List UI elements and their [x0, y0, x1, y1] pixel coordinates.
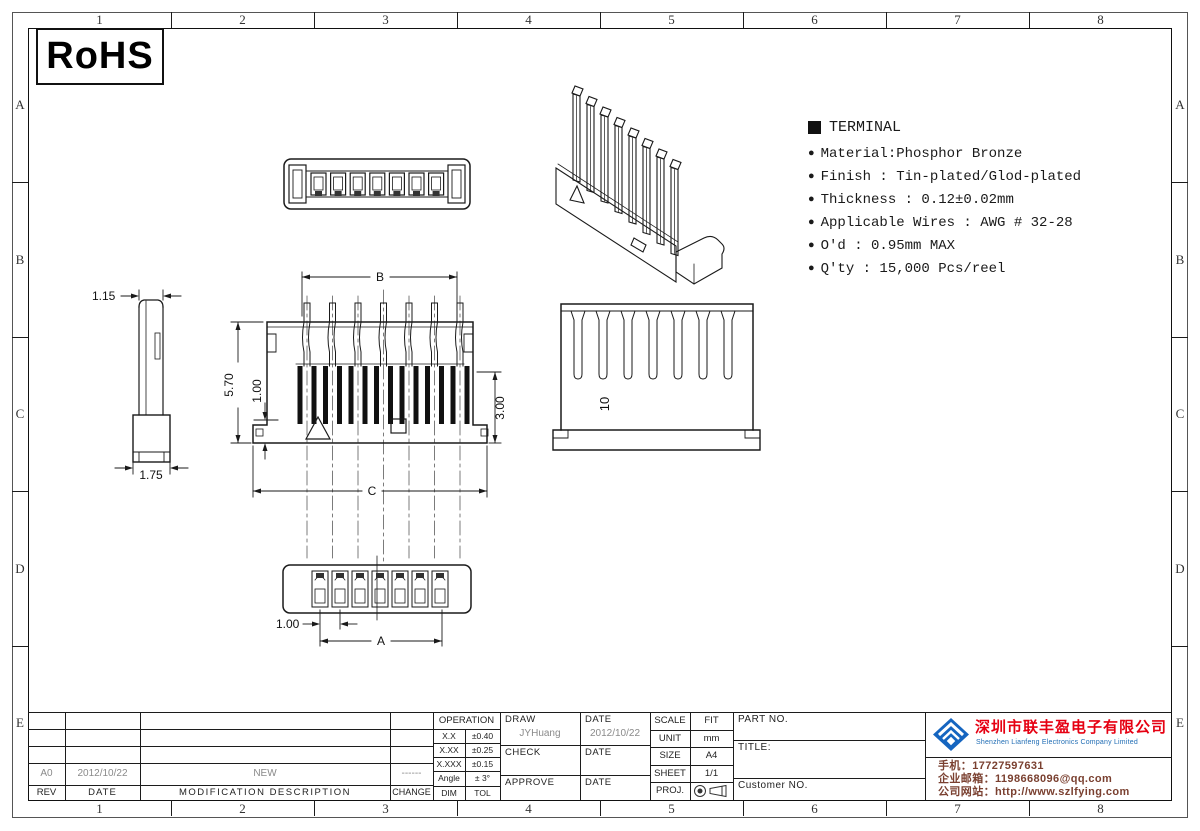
tol-val: ±0.40: [465, 729, 500, 743]
drawing-canvas: 1.15 1.75 B 5.70 1.00 3.00 C 1.00 A 10: [0, 0, 1200, 831]
iso-body: [556, 164, 678, 282]
rev-date: 2012/10/22: [65, 763, 140, 785]
tol-dim: X.XX: [433, 743, 465, 757]
scale-label: SCALE: [650, 712, 690, 730]
draw-date-value: 2012/10/22: [580, 726, 650, 742]
title-label: TITLE:: [738, 743, 771, 753]
dim-label-5-70: 5.70: [222, 373, 236, 397]
approve-label: APPROVE: [505, 778, 554, 788]
company-name-en: Shenzhen Lianfeng Electronics Company Li…: [976, 739, 1138, 746]
part-no-label: PART NO.: [738, 715, 788, 725]
tol-val: ±0.25: [465, 743, 500, 757]
rev-desc-header: MODIFICATION DESCRIPTION: [140, 785, 390, 800]
sheet-value: 1/1: [690, 765, 733, 782]
iso-foot: [676, 236, 724, 284]
rev-change-header: CHANGE: [390, 785, 433, 800]
view-rear: [553, 304, 760, 450]
view-front: [231, 272, 501, 562]
size-value: A4: [690, 747, 733, 765]
iso-blades: [572, 86, 681, 256]
proj-label: PROJ.: [650, 782, 690, 800]
unit-label: UNIT: [650, 730, 690, 747]
size-label: SIZE: [650, 747, 690, 765]
tol-dim: X.XXX: [433, 757, 465, 771]
bottom-view-contacts: [312, 571, 448, 607]
dim-label-1-00-front: 1.00: [250, 379, 264, 403]
check-date-label: DATE: [585, 748, 612, 758]
sheet-label: SHEET: [650, 765, 690, 782]
dim-1-00-front: [254, 403, 278, 459]
tol-dim: X.X: [433, 729, 465, 743]
front-centerlines: [307, 290, 460, 562]
rear-slots: [571, 311, 735, 379]
tol-val: TOL: [465, 786, 500, 800]
first-angle-projection-icon: [690, 782, 733, 800]
dim-label-1-15: 1.15: [92, 289, 116, 303]
company-name-cn: 深圳市联丰盈电子有限公司: [975, 720, 1167, 735]
tol-dim: DIM: [433, 786, 465, 800]
draw-date-label: DATE: [585, 715, 612, 725]
rev-description: NEW: [140, 763, 390, 785]
dim-label-1-00-pitch: 1.00: [276, 617, 300, 631]
rev-header: REV: [28, 785, 65, 800]
check-label: CHECK: [505, 748, 541, 758]
view-isometric: [556, 86, 724, 284]
company-phone: 手机：17727597631: [938, 761, 1044, 772]
drawing-sheet: 1 2 3 4 5 6 7 8 1 2 3 4 5 6 7 8 A B C D …: [0, 0, 1200, 831]
view-top: [284, 159, 470, 209]
dim-label-b: B: [376, 270, 384, 284]
view-bottom: [283, 556, 471, 646]
unit-value: mm: [690, 730, 733, 747]
approve-date-label: DATE: [585, 778, 612, 788]
tolerance-header: OPERATION: [433, 712, 500, 729]
tol-dim: Angle: [433, 771, 465, 786]
draw-label: DRAW: [505, 715, 536, 725]
draw-name: JYHuang: [500, 726, 580, 742]
rear-cavity-label: 10: [597, 397, 612, 411]
rev-date-header: DATE: [65, 785, 140, 800]
dim-1-15: [121, 290, 181, 300]
dim-label-3-00: 3.00: [493, 396, 507, 420]
rev-id: A0: [28, 763, 65, 785]
customer-no-label: Customer NO.: [738, 781, 808, 791]
scale-value: FIT: [690, 712, 733, 730]
view-side: [115, 290, 188, 474]
company-website: 公司网站：http://www.szlfying.com: [938, 787, 1130, 798]
front-terminals: [303, 303, 464, 366]
dim-label-a: A: [377, 634, 385, 648]
top-view-contacts: [311, 173, 444, 196]
dim-label-c: C: [368, 484, 377, 498]
company-logo: [931, 716, 971, 753]
company-email: 企业邮箱：1198668096@qq.com: [938, 774, 1112, 785]
tol-val: ± 3°: [465, 771, 500, 786]
dim-label-1-75: 1.75: [139, 468, 163, 482]
tol-val: ±0.15: [465, 757, 500, 771]
rev-change: ------: [390, 763, 433, 785]
